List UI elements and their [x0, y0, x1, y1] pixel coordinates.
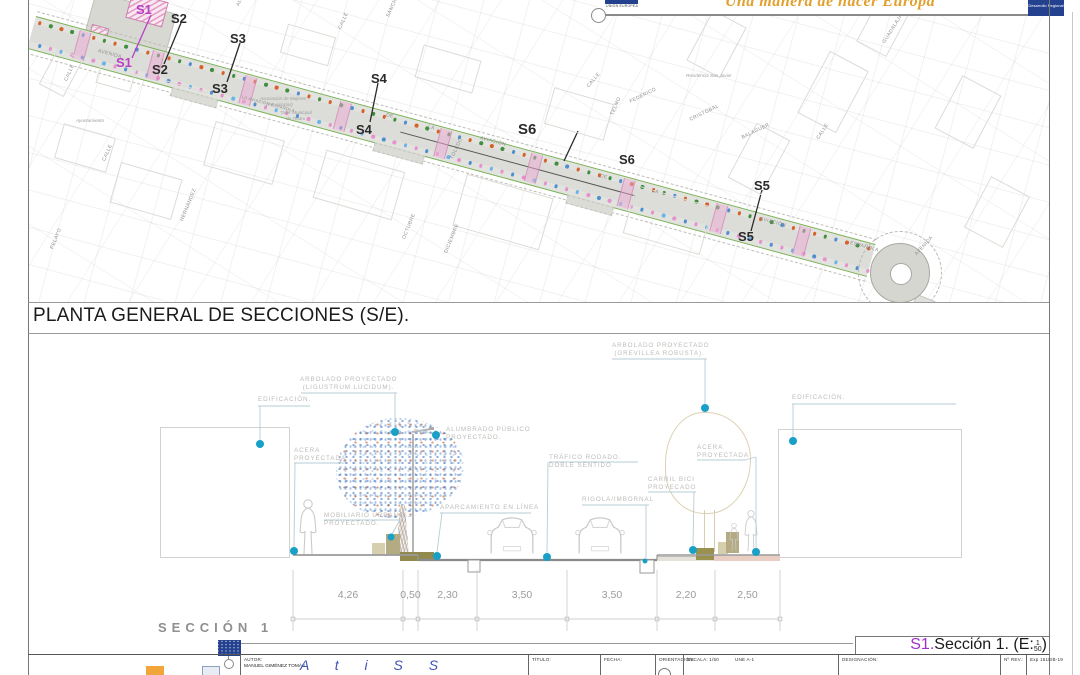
dim-tick [416, 617, 420, 621]
callout-line: ACERA [697, 444, 749, 452]
dim-tick [565, 617, 569, 621]
tree-dot [70, 30, 74, 34]
map-block [203, 121, 285, 185]
street-label: HERNÁNDEZ [179, 188, 198, 222]
callout-line: PROYECADO [648, 484, 696, 492]
tree-dot [404, 120, 408, 124]
tree-dot [317, 120, 321, 124]
tree-dot [544, 158, 548, 162]
map-block [313, 150, 406, 221]
street-label: PELAYO [49, 227, 63, 250]
section-ref-text: Sección 1. (E: [934, 636, 1034, 653]
section-ref-suffix: ) [1042, 636, 1047, 653]
section-name-label: SECCIÓN 1 [158, 620, 273, 635]
tree-dot [834, 237, 838, 241]
dimension-value: 0,50 [391, 589, 431, 601]
tree-dot [371, 112, 375, 116]
tree-dot [823, 234, 827, 238]
tree-dot [328, 123, 332, 127]
tree-dot [813, 232, 817, 236]
sheet-outer-edge [1072, 12, 1073, 675]
leader-line [294, 463, 295, 548]
map-block [280, 24, 336, 67]
tree-dot [328, 100, 332, 104]
tree-dot [264, 82, 268, 86]
callout-label: MOBILIARIO URBANOPROYECTADO. [324, 512, 405, 528]
callout-line: MOBILIARIO URBANO [324, 512, 405, 520]
place-label: Taller Municipal [280, 110, 312, 115]
tree-dot [92, 36, 96, 40]
roundabout-island [890, 263, 912, 285]
car-figure [574, 509, 626, 558]
tree-dot [780, 245, 784, 249]
titleblock-label: AUTOR: [244, 657, 262, 662]
tree-dot [565, 187, 569, 191]
leader-dot [643, 559, 648, 564]
title-block: AUTOR:MANUEL GIMÉNEZ TOMÁSTÍTULO:FECHA:O… [28, 654, 1049, 675]
tree-dot [48, 47, 52, 51]
tree-trunk [704, 510, 715, 552]
leader-dot [701, 404, 709, 412]
person-figure [742, 505, 760, 557]
sheet-frame-right [1049, 0, 1050, 675]
titleblock-label: Exp 1518/B-19 [1030, 657, 1063, 662]
tree-dot [500, 169, 504, 173]
street-label: SÁNCHEZ [385, 0, 401, 18]
regional-development-logo: Desarrollo Regional [1028, 0, 1064, 16]
titleblock-divider [655, 655, 656, 675]
dim-tick [401, 617, 405, 621]
tree-dot [425, 149, 429, 153]
tree-planter [400, 552, 434, 561]
callout-line: EDIFICACIÓN. [792, 394, 845, 402]
tree-dot [748, 214, 752, 218]
callout-line: (LIGUSTRUM LUCIDUM). [300, 384, 397, 392]
tree-dot [823, 257, 827, 261]
banner-line [598, 14, 1030, 16]
titleblock-label: Nº REV.: [1004, 657, 1023, 662]
tree-dot [737, 211, 741, 215]
titleblock-divider [1026, 655, 1027, 675]
tree-dot [608, 176, 612, 180]
person-figure [296, 498, 320, 556]
section-marker-label: S5 [738, 229, 754, 244]
callout-label: ALUMBRADO PÚBLICOPROYECTADO. [446, 426, 531, 442]
orientation-compass [658, 668, 671, 675]
author-signature: A t i S S [300, 657, 449, 673]
tree-dot [91, 58, 95, 62]
banner-slogan: Una manera de hacer Europa [700, 0, 960, 11]
map-block [686, 10, 746, 78]
street-label: DICIEMBRE [443, 223, 460, 254]
section-reference: S1.Sección 1. (E:150) [877, 636, 1047, 654]
callout-line: TRÁFICO RODADO. [549, 454, 621, 462]
tree-dot [726, 231, 730, 235]
tree-dot [145, 50, 149, 54]
eu-logo-label: UNIÓN EUROPEA [601, 4, 643, 8]
drain-notch [640, 560, 654, 573]
tree-dot [135, 47, 139, 51]
street-label: ALTEZA [235, 0, 249, 7]
dimension-value: 3,50 [592, 589, 632, 601]
scale-fraction: 150 [1034, 641, 1042, 653]
tree-grevillea [665, 412, 751, 514]
callout-label: RIGOLA/IMBORNAL [582, 496, 654, 504]
dimension-value: 4,26 [328, 589, 368, 601]
tree-dot [479, 164, 483, 168]
map-block [414, 44, 481, 93]
tree-dot [361, 109, 365, 113]
section-marker-label: S3 [230, 31, 246, 46]
sidewalk-bulge [565, 195, 614, 216]
tree-dot [468, 161, 472, 165]
callout-line: ARBOLADO PROYECTADO [300, 376, 397, 384]
callout-label: EDIFICACIÓN. [792, 394, 845, 402]
section-drawing: EDIFICACIÓN.ARBOLADO PROYECTADO(LIGUSTRU… [28, 333, 1049, 654]
map-block [109, 162, 182, 220]
map-block [964, 176, 1030, 248]
street-lamp-head [429, 427, 434, 430]
callout-line: (GREVILLEA ROBUSTA). [612, 350, 707, 358]
tree-dot [543, 181, 547, 185]
titleblock-label: ESCALA: 1/50 [687, 657, 719, 662]
tree-dot [845, 240, 849, 244]
tree-dot [403, 143, 407, 147]
tree-dot [554, 161, 558, 165]
section-marker-label: S4 [356, 122, 372, 137]
place-label: Ayuntamiento [76, 118, 104, 123]
tree-dot [296, 91, 300, 95]
titleblock-divider [683, 655, 684, 675]
tree-dot [587, 170, 591, 174]
tree-dot [124, 44, 128, 48]
curb-planter [696, 548, 714, 560]
section-marker-label: S1 [136, 2, 152, 17]
divider-line [28, 302, 1049, 303]
section-ref-id: S1. [910, 636, 934, 653]
tree-dot [275, 85, 279, 89]
tree-dot [576, 167, 580, 171]
crosswalk [333, 101, 352, 132]
tree-dot [844, 263, 848, 267]
callout-label: TRÁFICO RODADO.DOBLE SENTIDO [549, 454, 621, 470]
map-block [797, 51, 869, 133]
drawing-sheet: AVENIDALA AVIACIÓN ESPAÑOLADELAAVIACIÓND… [0, 0, 1080, 675]
tree-dot [393, 118, 397, 122]
callout-line: ACERA [294, 447, 346, 455]
tree-dot [59, 27, 63, 31]
callout-line: PROYECTADO. [324, 520, 405, 528]
child-figure [728, 518, 740, 556]
callout-line: RIGOLA/IMBORNAL [582, 496, 654, 504]
dimension-value: 3,50 [502, 589, 542, 601]
tree-dot [349, 129, 353, 133]
tree-dot [586, 193, 590, 197]
place-label: Asociación de Mujeres [260, 96, 306, 101]
callout-line: EDIFICACIÓN. [258, 396, 311, 404]
callout-label: ARBOLADO PROYECTADO(GREVILLEA ROBUSTA). [612, 342, 707, 358]
tree-ligustrum [336, 418, 464, 518]
section-marker-label: S2 [171, 11, 187, 26]
tree-dot [221, 71, 225, 75]
callout-line: APARCAMIENTO EN LÍNEA [440, 504, 539, 512]
callout-label: ARBOLADO PROYECTADO(LIGUSTRUM LUCIDUM). [300, 376, 397, 392]
sidewalk-bulge [372, 142, 425, 164]
tree-dot [522, 153, 526, 157]
tree-dot [113, 42, 117, 46]
dimension-value: 2,30 [428, 589, 468, 601]
section-marker-label: S6 [518, 121, 536, 138]
drain-notch [468, 560, 480, 572]
tree-dot [38, 21, 42, 25]
section-marker-label: S1 [116, 55, 132, 70]
titleblock-label: UNE A-1 [735, 657, 754, 662]
page-title: PLANTA GENERAL DE SECCIONES (S/E). [33, 305, 409, 327]
building-left [160, 427, 290, 558]
tree-dot [608, 199, 612, 203]
tree-dot [489, 167, 493, 171]
banner-circle [591, 8, 606, 23]
tree-dot [511, 150, 515, 154]
map-block [544, 87, 614, 141]
callout-label: CARRIL BICIPROYECADO [648, 476, 696, 492]
place-label: Residencia San Javier [686, 73, 732, 78]
site-plan: AVENIDALA AVIACIÓN ESPAÑOLADELAAVIACIÓND… [28, 0, 1049, 302]
right-logo-line1: Desarrollo [1028, 3, 1046, 8]
map-block [934, 75, 1001, 149]
tree-dot [597, 196, 601, 200]
callout-line: DOBLE SENTIDO [549, 462, 621, 470]
callout-line: ARBOLADO PROYECTADO [612, 342, 707, 350]
street-label: CALLE [815, 122, 830, 140]
leader-dot [543, 553, 551, 561]
connector-line [241, 643, 853, 644]
tree-dot [318, 97, 322, 101]
tree-dot [468, 138, 472, 142]
tree-dot [392, 140, 396, 144]
callout-line: ALUMBRADO PÚBLICO [446, 426, 531, 434]
bench [386, 534, 400, 555]
titleblock-value: MANUEL GIMÉNEZ TOMÁS [244, 664, 305, 669]
callout-line: PROYECTADA [697, 452, 749, 460]
titleblock-divider [600, 655, 601, 675]
dim-tick [778, 617, 782, 621]
callout-label: APARCAMIENTO EN LÍNEA [440, 504, 539, 512]
tree-dot [834, 260, 838, 264]
car-figure [486, 509, 538, 558]
tree-dot [232, 74, 236, 78]
road-axis-line [400, 132, 635, 197]
tree-dot [414, 146, 418, 150]
titleblock-label: FECHA: [604, 657, 622, 662]
street-label: TELMO [609, 96, 622, 116]
titleblock-divider [528, 655, 529, 675]
section-marker-label: S5 [754, 178, 770, 193]
section-marker-label: S3 [212, 81, 228, 96]
street-label: CALLE [337, 11, 350, 30]
crosswalk [524, 153, 543, 184]
tree-dot [758, 240, 762, 244]
callout-line: PROYECTADA [294, 455, 346, 463]
callout-label: EDIFICACIÓN. [258, 396, 311, 404]
tree-dot [307, 94, 311, 98]
tree-dot [457, 158, 461, 162]
tree-dot [49, 24, 53, 28]
street-label: FEDERICO [629, 87, 658, 105]
street-label: OCTUBRE [401, 213, 417, 241]
place-label: (Por Asociar) [266, 102, 293, 107]
dim-tick [475, 617, 479, 621]
section-marker-label: S2 [152, 62, 168, 77]
tree-dot [37, 44, 41, 48]
dim-tick [291, 617, 295, 621]
titleblock-label: DESIGNACIÓN: [842, 657, 878, 662]
callout-line: PROYECTADO. [446, 434, 531, 442]
callout-line: CARRIL BICI [648, 476, 696, 484]
titleblock-divider [1000, 655, 1001, 675]
tree-dot [791, 226, 795, 230]
place-label: de Teatro [286, 116, 305, 121]
tree-dot [575, 190, 579, 194]
leader-line [547, 462, 548, 553]
tree-dot [812, 254, 816, 258]
tree-dot [511, 172, 515, 176]
section-marker-label: S4 [371, 71, 387, 86]
titleblock-label: TÍTULO: [532, 657, 551, 662]
tree-dot [382, 137, 386, 141]
dim-tick [713, 617, 717, 621]
street-label: CRISTÓBAL [689, 103, 720, 122]
ref-box-line [855, 636, 856, 654]
bench [372, 543, 385, 555]
tree-dot [306, 117, 310, 121]
tree-dot [554, 184, 558, 188]
dimension-value: 2,20 [666, 589, 706, 601]
callout-label: ACERAPROYECTADA [697, 444, 749, 460]
tree-dot [231, 96, 235, 100]
leader-dot [433, 552, 441, 560]
leader-line [437, 513, 442, 552]
street-lamp [412, 434, 414, 555]
frac-bottom: 50 [1034, 647, 1042, 653]
tree-dot [285, 88, 289, 92]
tree-dot [565, 164, 569, 168]
dimension-value: 2,50 [728, 589, 768, 601]
tree-dot [769, 243, 773, 247]
tree-dot [414, 123, 418, 127]
section-marker-label: S6 [619, 152, 635, 167]
callout-label: ACERAPROYECTADA [294, 447, 346, 463]
dim-tick [655, 617, 659, 621]
building-right [778, 429, 962, 558]
street-label: CALLE [586, 71, 602, 89]
crosswalk [792, 226, 811, 257]
titleblock-divider [240, 655, 241, 675]
titleblock-divider [838, 655, 839, 675]
tree-dot [102, 39, 106, 43]
